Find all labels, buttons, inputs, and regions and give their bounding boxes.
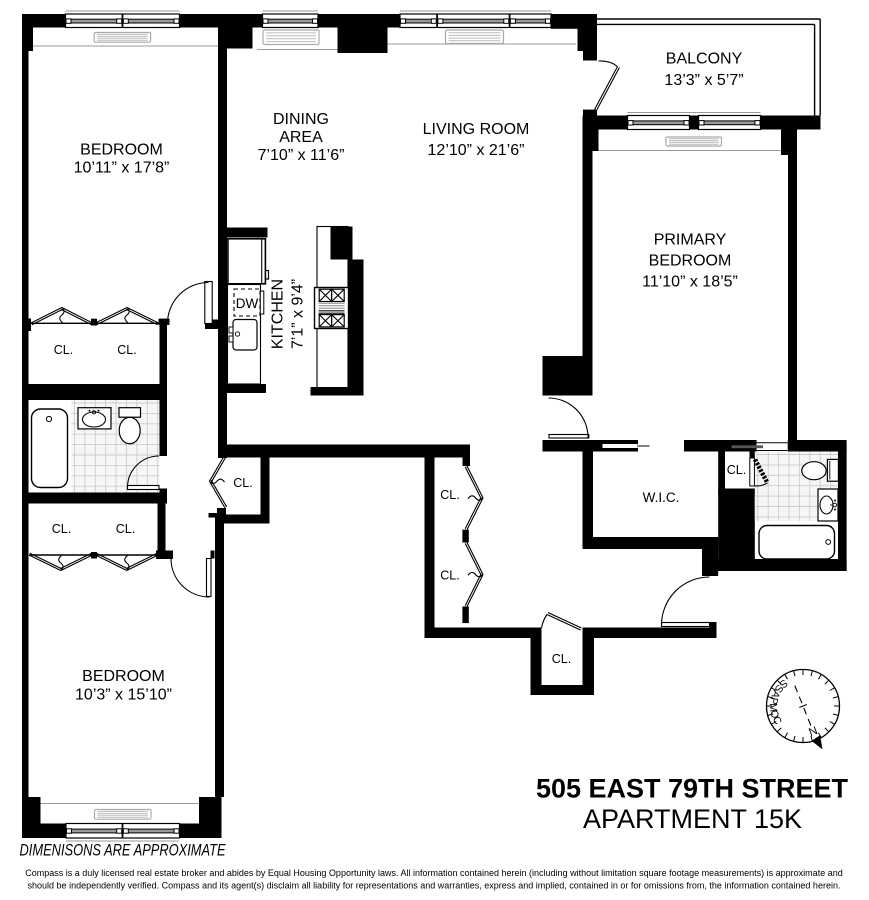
svg-text:CL.: CL.: [440, 488, 459, 502]
svg-text:13’3” x 5’7”: 13’3” x 5’7”: [664, 72, 743, 89]
svg-text:7’10” x 11’6”: 7’10” x 11’6”: [258, 147, 345, 164]
svg-text:BEDROOM: BEDROOM: [649, 253, 732, 270]
svg-text:KITCHEN: KITCHEN: [270, 279, 287, 349]
svg-text:APARTMENT 15K: APARTMENT 15K: [583, 804, 802, 834]
svg-text:should be independently verifi: should be independently verified. Compas…: [28, 881, 841, 891]
svg-text:505 EAST 79TH STREET: 505 EAST 79TH STREET: [536, 774, 849, 804]
svg-text:CL.: CL.: [117, 343, 136, 357]
svg-text:7’1” x 9’4”: 7’1” x 9’4”: [290, 279, 307, 349]
svg-text:W.I.C.: W.I.C.: [643, 490, 680, 505]
svg-text:CL.: CL.: [116, 522, 135, 536]
svg-text:CL.: CL.: [233, 476, 252, 490]
svg-text:12’10” x 21’6”: 12’10” x 21’6”: [428, 142, 525, 159]
svg-text:DW: DW: [236, 296, 259, 311]
svg-text:BEDROOM: BEDROOM: [82, 668, 165, 685]
svg-text:CL.: CL.: [552, 652, 571, 666]
svg-text:CL.: CL.: [440, 569, 459, 583]
svg-text:BEDROOM: BEDROOM: [80, 142, 163, 159]
svg-text:LIVING ROOM: LIVING ROOM: [423, 121, 530, 138]
svg-text:AREA: AREA: [279, 129, 323, 146]
svg-text:CL.: CL.: [54, 343, 73, 357]
svg-text:DINING: DINING: [273, 111, 329, 128]
svg-text:CL.: CL.: [52, 522, 71, 536]
svg-text:DIMENISONS ARE APPROXIMATE: DIMENISONS ARE APPROXIMATE: [20, 842, 226, 860]
svg-text:CL.: CL.: [727, 463, 746, 477]
svg-text:10’3” x 15’10”: 10’3” x 15’10”: [75, 687, 172, 704]
svg-text:10’11” x 17’8”: 10’11” x 17’8”: [74, 160, 170, 177]
svg-text:11’10” x 18’5”: 11’10” x 18’5”: [642, 274, 738, 291]
svg-text:PRIMARY: PRIMARY: [654, 232, 727, 249]
svg-text:Compass is a duly licensed rea: Compass is a duly licensed real estate b…: [25, 868, 842, 878]
svg-text:BALCONY: BALCONY: [666, 51, 743, 68]
